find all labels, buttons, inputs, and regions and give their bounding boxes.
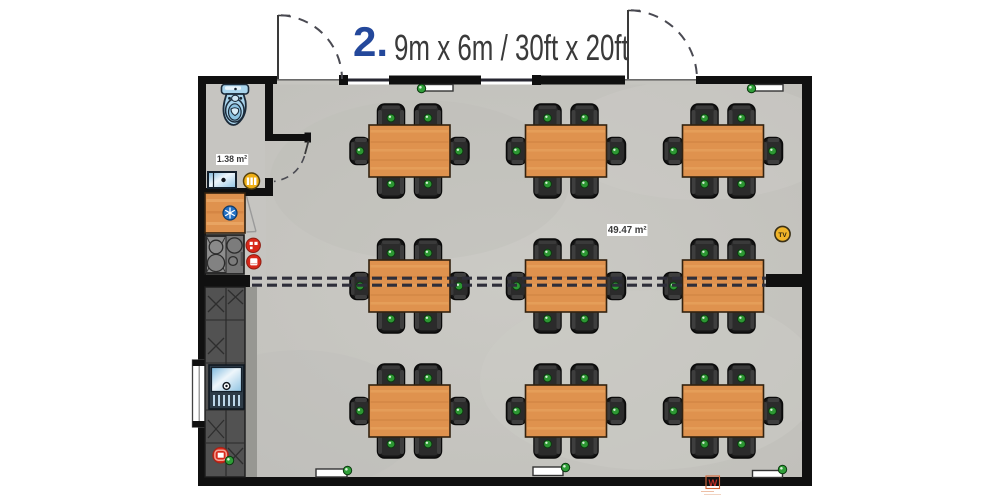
- svg-text:W: W: [708, 478, 717, 489]
- svg-text:TV: TV: [778, 232, 787, 239]
